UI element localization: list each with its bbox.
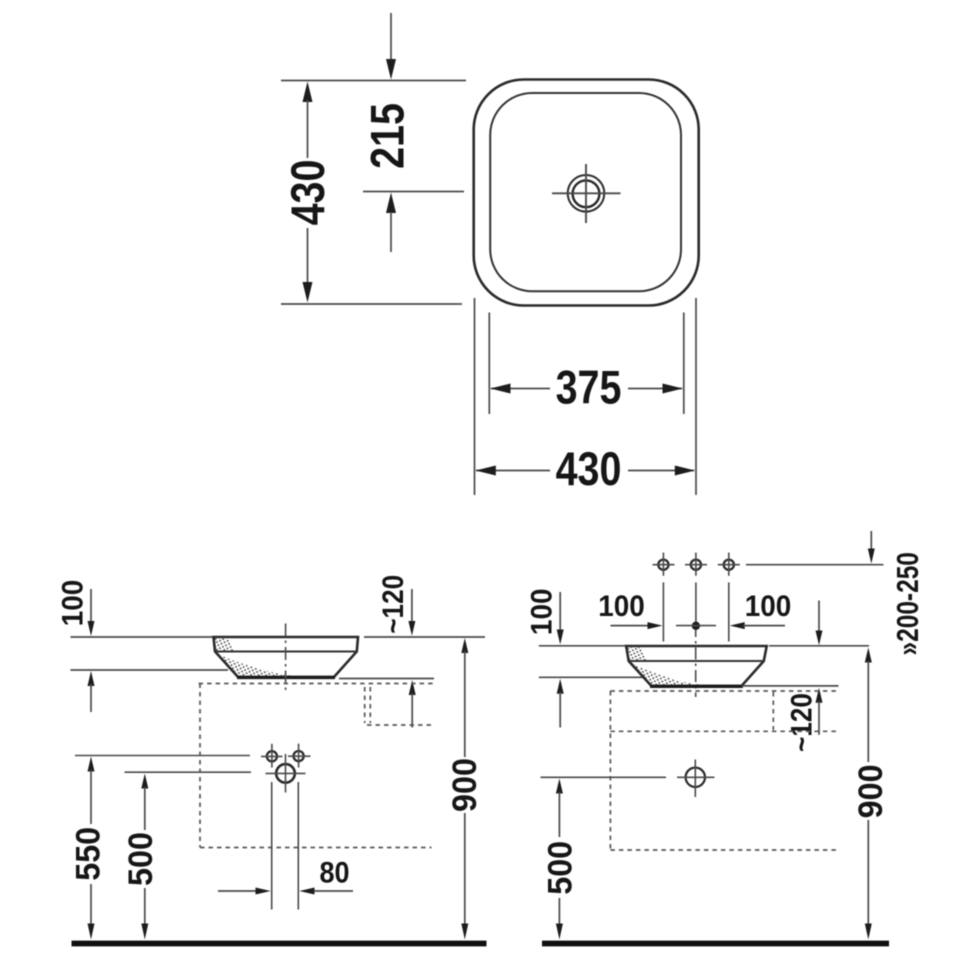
svg-text:80: 80: [319, 856, 349, 890]
svg-text:900: 900: [446, 758, 484, 812]
svg-text:~120: ~120: [785, 693, 818, 752]
svg-text:»200-250: »200-250: [890, 552, 924, 655]
svg-text:500: 500: [122, 832, 160, 886]
svg-text:430: 430: [283, 160, 335, 226]
svg-text:100: 100: [745, 590, 792, 623]
svg-text:430: 430: [556, 444, 622, 496]
svg-text:375: 375: [556, 362, 622, 414]
svg-text:100: 100: [525, 589, 558, 636]
svg-text:215: 215: [363, 103, 415, 169]
svg-text:550: 550: [70, 827, 108, 881]
svg-text:500: 500: [542, 841, 580, 895]
svg-text:~120: ~120: [376, 575, 409, 634]
svg-text:900: 900: [852, 764, 890, 818]
svg-text:100: 100: [56, 580, 89, 627]
svg-text:100: 100: [598, 590, 645, 623]
